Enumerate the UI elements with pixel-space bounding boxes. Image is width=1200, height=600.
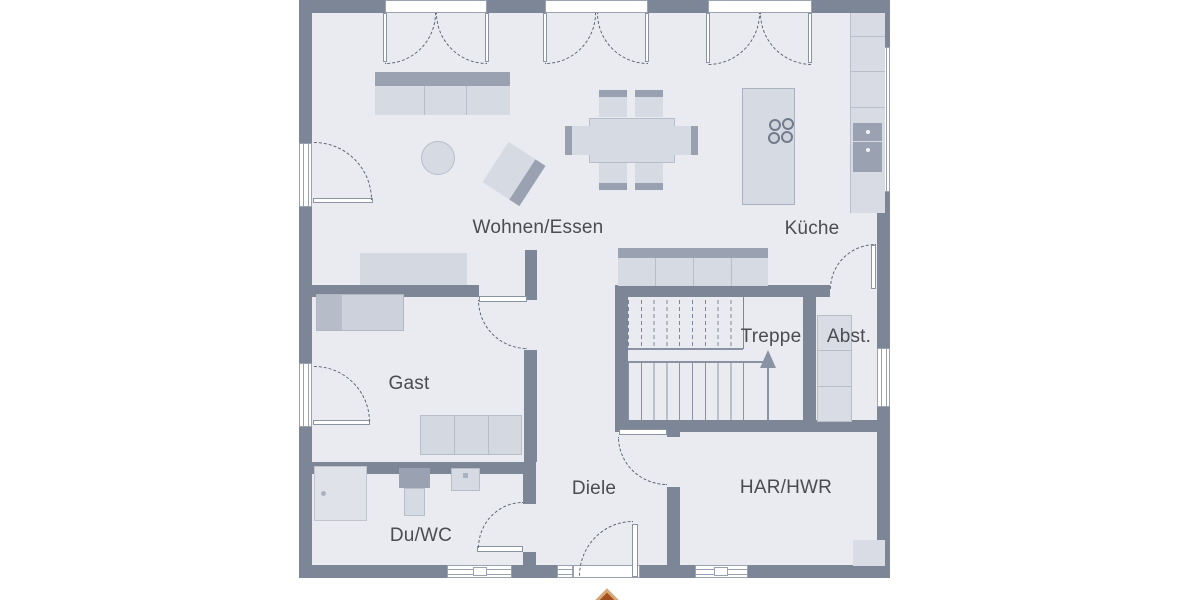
wall-stairs-left	[615, 285, 628, 422]
sink-icon	[451, 468, 480, 491]
wall-top-3	[648, 0, 708, 13]
wall-bottom-2	[512, 565, 557, 578]
bed-icon	[316, 294, 404, 331]
sofa-back-icon	[375, 72, 510, 86]
toilet-tank-icon	[399, 468, 430, 488]
wall-top-2	[487, 0, 545, 13]
cooktop-burner-icon	[769, 119, 781, 131]
drawer-icon	[853, 123, 882, 141]
wall-left-3	[299, 427, 312, 578]
terrace-door-guest	[299, 363, 312, 427]
window-tilt-marker-icon	[473, 567, 487, 576]
door-leaf-icon	[619, 429, 667, 435]
kitchen-sideboard-icon	[618, 258, 768, 286]
sofa-icon	[375, 86, 510, 115]
dining-table-icon	[589, 118, 675, 163]
wall-right-2	[877, 192, 890, 348]
chair-icon	[673, 126, 698, 155]
counter-back-icon	[618, 248, 768, 258]
chair-icon	[635, 163, 663, 190]
french-door-opening-1	[385, 0, 487, 13]
wall-bottom-1	[299, 565, 447, 578]
wall-utility-left-lower	[667, 487, 680, 578]
chair-icon	[565, 126, 590, 155]
room-label-kitchen: Küche	[785, 218, 840, 240]
window-storage	[877, 348, 890, 407]
wall-bath-right-lower	[523, 552, 536, 565]
stairs-lower-treads-icon	[628, 363, 744, 420]
room-label-storage: Abst.	[827, 326, 871, 348]
terrace-door-living	[299, 143, 312, 207]
wall-bath-right-upper	[523, 462, 536, 504]
stairs-cut-line	[628, 348, 743, 350]
kitchen-counter-icon	[850, 13, 885, 213]
cooktop-burner-icon	[768, 132, 780, 144]
appliance-icon	[853, 540, 885, 566]
kitchen-island-icon	[742, 88, 795, 205]
wall-pillar-corridor	[525, 250, 537, 300]
chair-icon	[635, 90, 663, 117]
stairs-upper-treads-icon	[628, 293, 744, 349]
entrance-arrow-icon	[591, 588, 622, 600]
room-label-hall: Diele	[572, 478, 616, 500]
coffee-table-icon	[421, 141, 455, 175]
wall-bottom-4	[748, 565, 890, 578]
room-label-utility: HAR/HWR	[740, 477, 832, 499]
cooktop-burner-icon	[781, 131, 793, 143]
wardrobe-icon	[420, 415, 522, 455]
french-door-opening-2	[545, 0, 648, 13]
floor-plan-canvas: Wohnen/Essen Küche Treppe Abst. Gast Die…	[0, 0, 1200, 600]
french-door-opening-3	[708, 0, 812, 13]
stairs-up-arrow-line	[767, 368, 769, 420]
room-label-bath: Du/WC	[390, 525, 452, 547]
chair-icon	[599, 163, 627, 190]
sideboard-icon	[360, 253, 467, 285]
wall-guest-right	[524, 350, 537, 462]
shower-icon	[314, 466, 367, 521]
window-tilt-marker-icon	[714, 567, 728, 576]
stairs-up-arrow-icon	[760, 350, 776, 368]
cooktop-burner-icon	[782, 118, 794, 130]
chair-icon	[599, 90, 627, 117]
room-label-guest: Gast	[389, 373, 430, 395]
room-label-living: Wohnen/Essen	[473, 217, 604, 239]
oven-icon	[853, 142, 882, 172]
toilet-icon	[404, 488, 425, 516]
window-sidelight	[557, 565, 573, 578]
wall-utility-left-upper	[667, 420, 680, 437]
wall-left-1	[299, 0, 312, 143]
wall-stairs-storage	[803, 297, 816, 422]
room-label-stairs: Treppe	[741, 326, 802, 348]
wall-left-2	[299, 207, 312, 363]
